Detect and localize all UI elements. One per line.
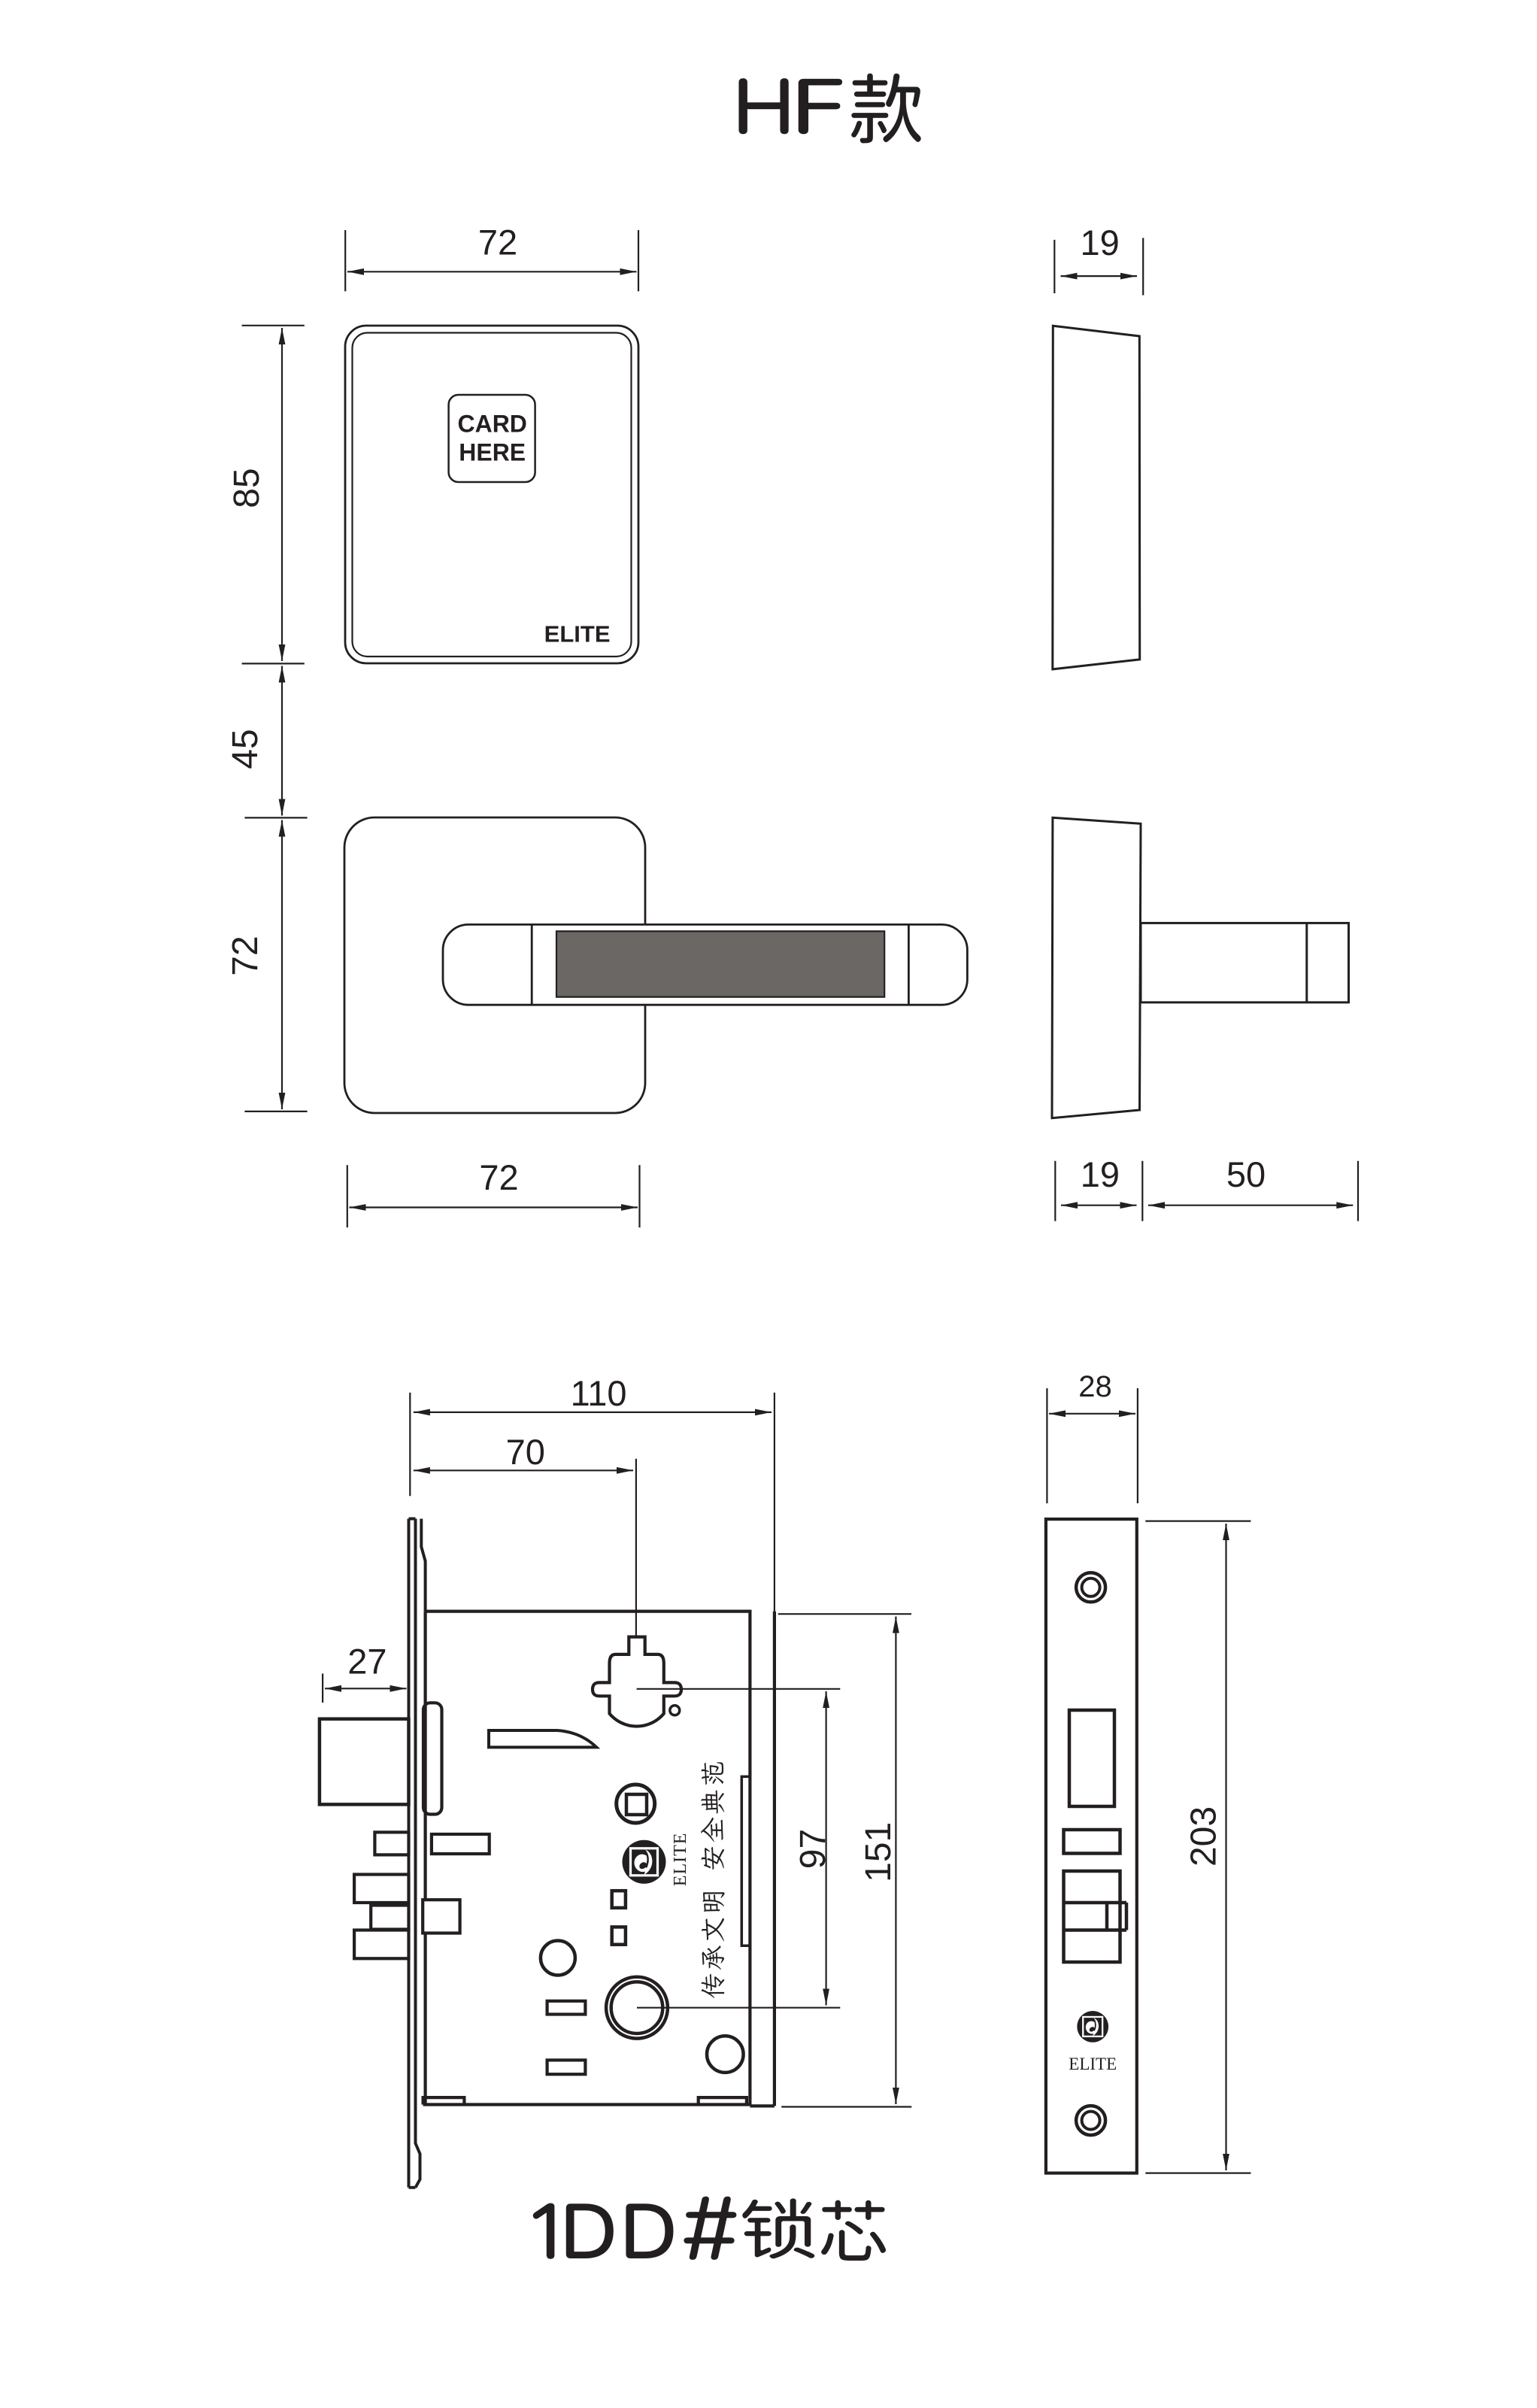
svg-text:19: 19 — [1081, 223, 1120, 262]
svg-text:50: 50 — [1226, 1154, 1266, 1194]
svg-text:72: 72 — [479, 1157, 518, 1197]
svg-text:85: 85 — [227, 468, 267, 508]
svg-text:72: 72 — [226, 936, 265, 975]
svg-text:28: 28 — [1078, 1370, 1112, 1403]
svg-text:45: 45 — [226, 729, 265, 769]
svg-text:70: 70 — [506, 1432, 545, 1472]
svg-text:CARD: CARD — [457, 411, 526, 438]
svg-text:HERE: HERE — [459, 439, 526, 466]
svg-text:ELITE: ELITE — [1069, 2055, 1117, 2073]
svg-text:ELITE: ELITE — [671, 1833, 690, 1887]
svg-text:19: 19 — [1081, 1154, 1120, 1194]
svg-text:110: 110 — [571, 1373, 627, 1413]
svg-text:151: 151 — [859, 1822, 899, 1882]
svg-text:203: 203 — [1184, 1806, 1224, 1867]
svg-text:97: 97 — [793, 1829, 833, 1869]
svg-text:72: 72 — [478, 223, 517, 262]
svg-text:27: 27 — [347, 1641, 387, 1681]
svg-text:ELITE: ELITE — [544, 621, 611, 647]
